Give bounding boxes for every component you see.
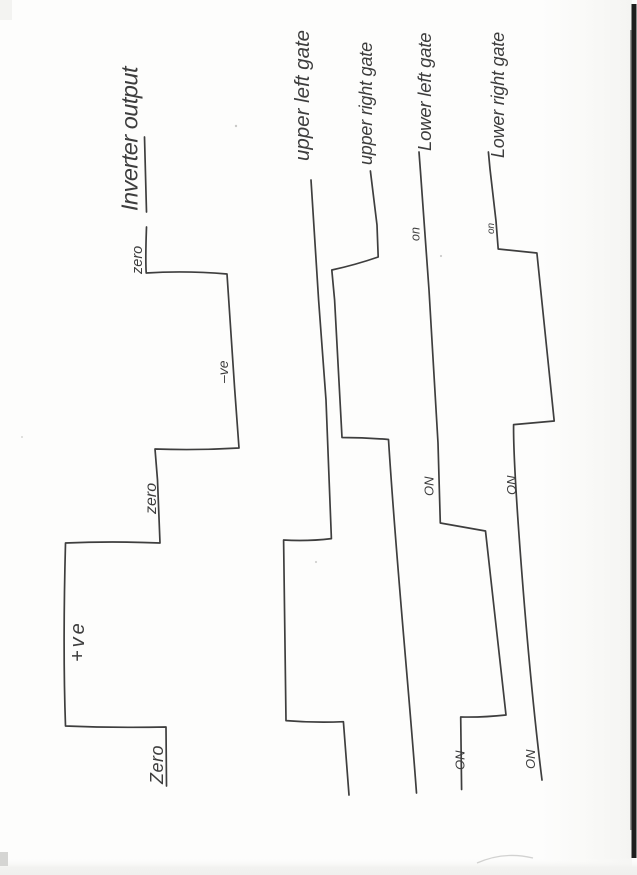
svg-text:Lower left gate: Lower left gate	[414, 33, 435, 151]
svg-text:Lower right gate: Lower right gate	[488, 32, 508, 158]
svg-text:Zero: Zero	[147, 745, 167, 785]
svg-text:–ve: –ve	[215, 360, 231, 384]
svg-text:ON: ON	[523, 749, 538, 769]
svg-text:on: on	[409, 227, 423, 241]
svg-text:zero: zero	[143, 483, 160, 515]
svg-text:ON: ON	[453, 750, 468, 770]
svg-text:upper left gate: upper left gate	[291, 30, 314, 161]
svg-text:ON: ON	[422, 476, 437, 496]
svg-text:+ve: +ve	[67, 620, 89, 662]
svg-text:on: on	[486, 222, 497, 234]
svg-text:zero: zero	[130, 246, 146, 275]
svg-text:ON: ON	[504, 475, 519, 495]
svg-text:upper right gate: upper right gate	[356, 42, 376, 165]
svg-text:Inverter output: Inverter output	[117, 65, 143, 211]
